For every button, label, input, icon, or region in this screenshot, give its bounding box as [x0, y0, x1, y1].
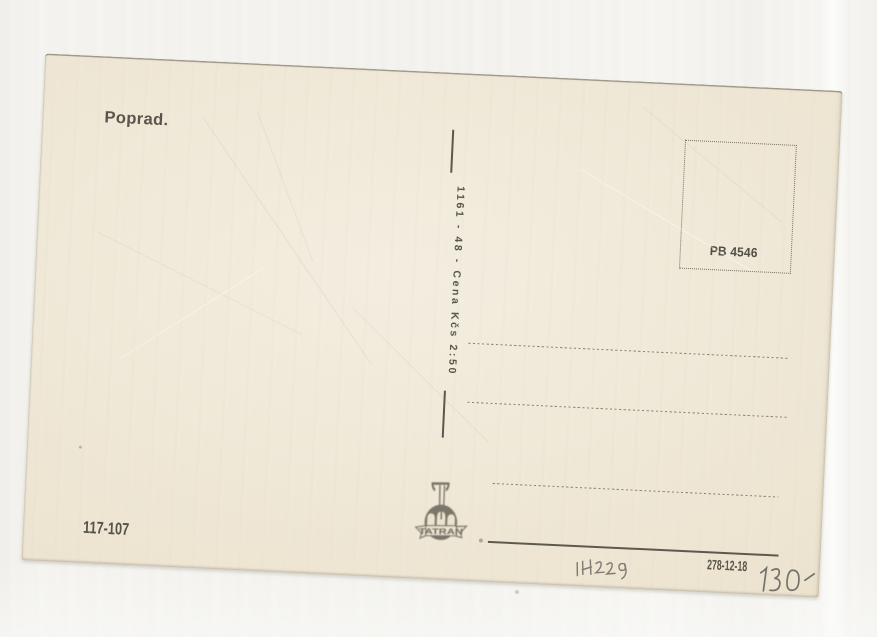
- svg-text:TATRAN: TATRAN: [419, 526, 464, 536]
